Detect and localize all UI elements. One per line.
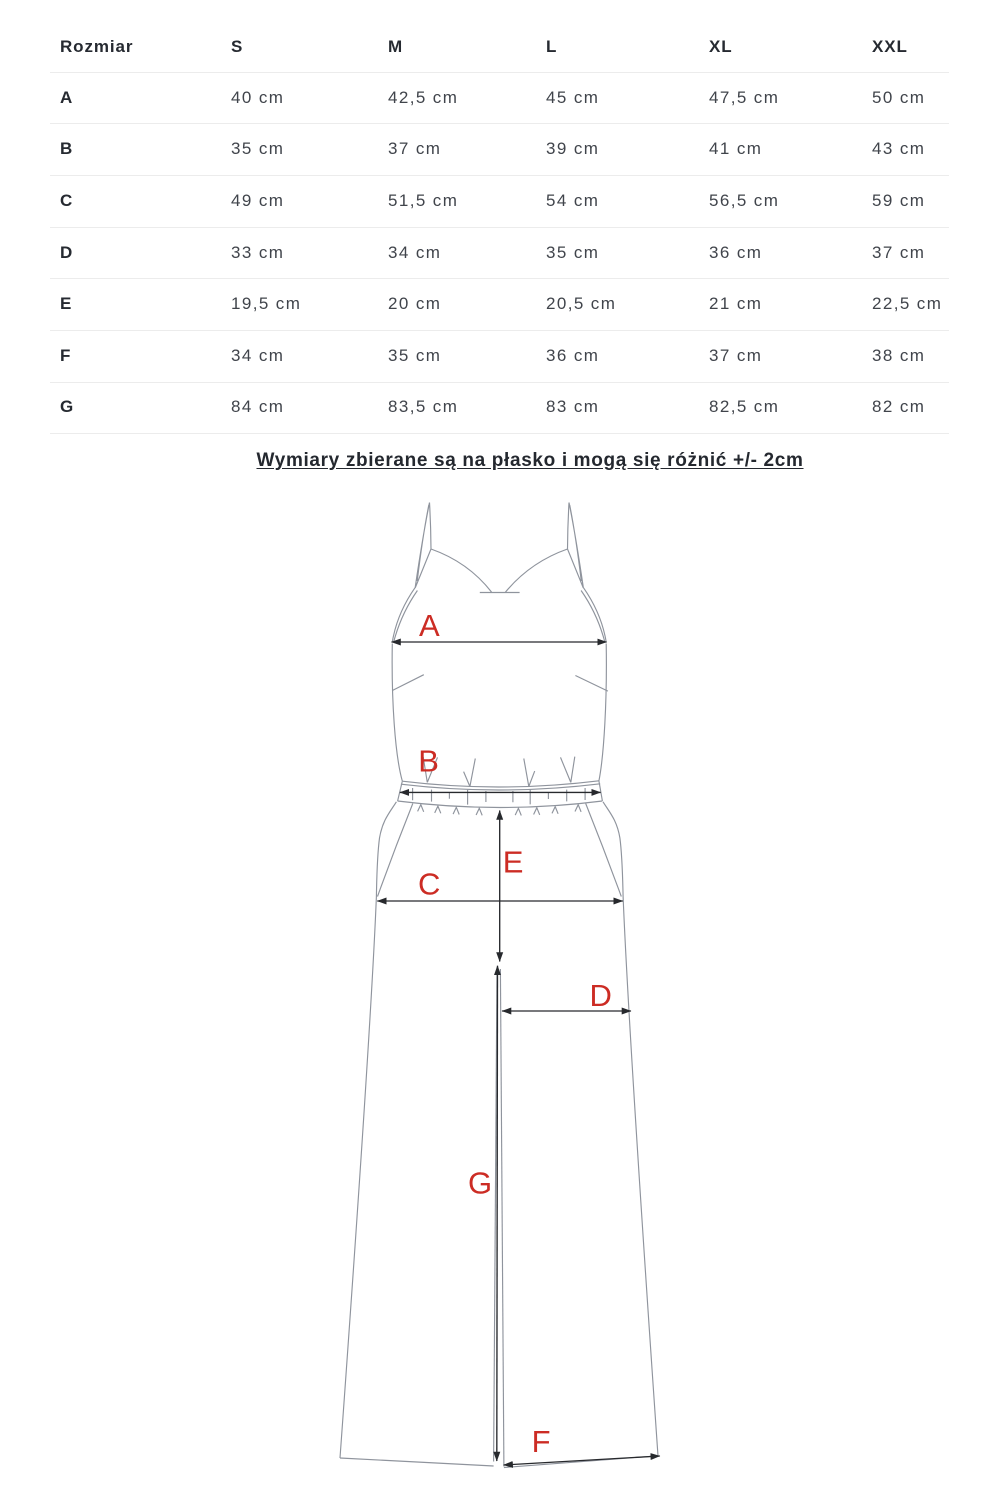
svg-text:F: F (532, 1424, 551, 1459)
svg-text:D: D (590, 978, 612, 1013)
svg-text:E: E (503, 845, 524, 880)
svg-text:G: G (468, 1166, 492, 1201)
svg-text:B: B (418, 744, 439, 779)
svg-text:C: C (418, 867, 440, 902)
svg-text:A: A (419, 608, 440, 643)
